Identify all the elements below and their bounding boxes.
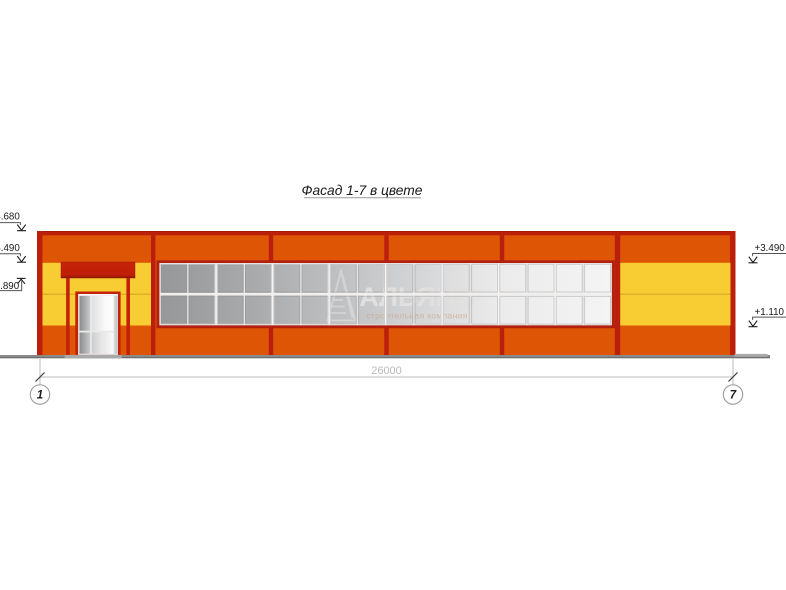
svg-text:АЛЬЯНС: АЛЬЯНС bbox=[359, 282, 475, 312]
svg-text:+1.110: +1.110 bbox=[755, 307, 785, 318]
svg-text:26000: 26000 bbox=[371, 365, 402, 377]
svg-text:1: 1 bbox=[37, 390, 43, 402]
svg-text:7: 7 bbox=[730, 390, 737, 402]
svg-text:строительная компания: строительная компания bbox=[366, 311, 468, 321]
svg-text:+4.680: +4.680 bbox=[0, 212, 20, 223]
svg-text:+3.490: +3.490 bbox=[755, 243, 786, 254]
svg-text:Фасад 1-7 в цвете: Фасад 1-7 в цвете bbox=[302, 183, 423, 198]
svg-text:+3.490: +3.490 bbox=[0, 243, 20, 254]
